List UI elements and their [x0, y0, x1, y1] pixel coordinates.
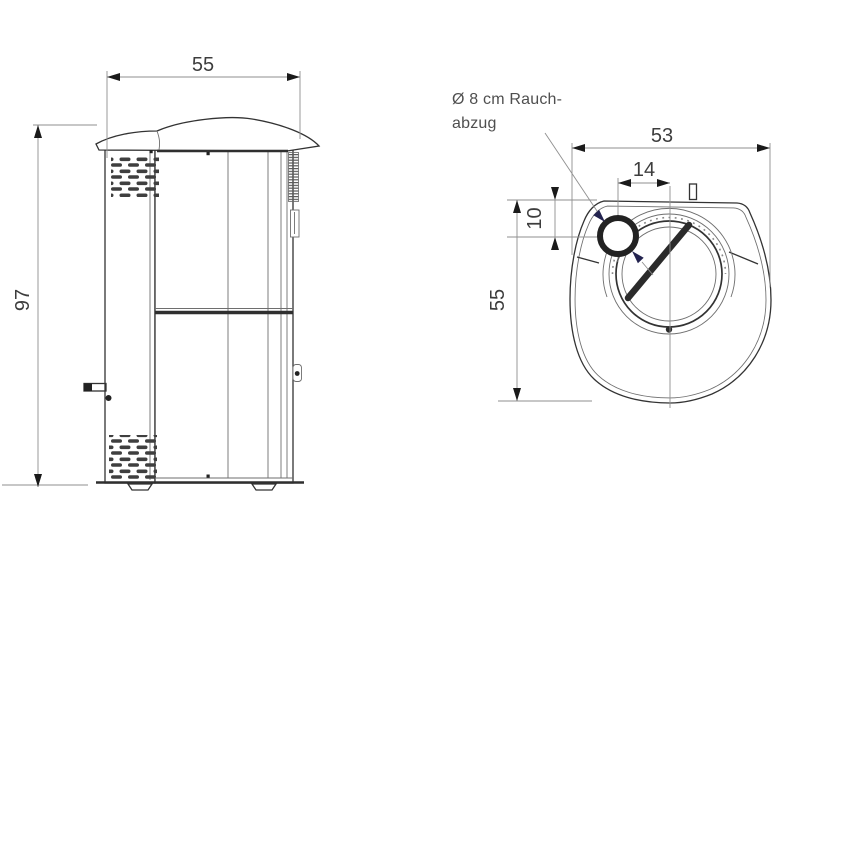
dim-vent-offset-label: 14 — [633, 159, 655, 181]
dim-top-depth-label: 55 — [487, 289, 509, 311]
arrow-down-icon — [551, 187, 559, 200]
stove-top-lid — [96, 118, 319, 151]
foot-rear — [128, 484, 152, 490]
dim-side-height-label: 97 — [12, 289, 34, 311]
top-view: Ø 8 cm Rauch- abzug 53 14 — [452, 91, 771, 408]
arrow-right-icon — [657, 179, 670, 187]
top-plate-pivot-dot — [666, 326, 672, 332]
side-view: 55 97 — [2, 54, 319, 490]
vent-slots-top — [111, 155, 159, 197]
arrow-down-icon — [513, 388, 521, 401]
leader-line — [545, 133, 603, 220]
arrow-up-icon — [513, 200, 521, 213]
dim-side-height: 97 — [2, 125, 97, 487]
front-grille — [289, 153, 299, 202]
arrow-left-icon — [618, 179, 631, 187]
dim-top-width-label: 53 — [651, 125, 673, 147]
dim-side-width-label: 55 — [192, 54, 214, 76]
arrow-left-icon — [572, 144, 585, 152]
smoke-flue-ring — [600, 218, 636, 254]
rear-pin — [690, 184, 697, 200]
technical-drawing-page: 55 97 — [0, 0, 850, 850]
vent-slots-bottom — [109, 435, 157, 479]
front-handle-dot — [295, 371, 300, 376]
arrow-left-icon — [107, 73, 120, 81]
arrow-right-icon — [757, 144, 770, 152]
foot-front — [252, 484, 276, 490]
dim-vent-depth-label: 10 — [524, 207, 546, 229]
dim-vent-offset: 14 — [618, 159, 670, 187]
arrow-up-icon — [551, 237, 559, 250]
stove-body-side — [155, 149, 293, 483]
stove-dimension-drawing: 55 97 — [0, 0, 850, 850]
vent-note-line2: abzug — [452, 115, 497, 132]
arrow-up-icon — [34, 125, 42, 138]
stove-back-panel — [105, 150, 155, 483]
arrow-right-icon — [287, 73, 300, 81]
vent-note-line1: Ø 8 cm Rauch- — [452, 91, 562, 108]
